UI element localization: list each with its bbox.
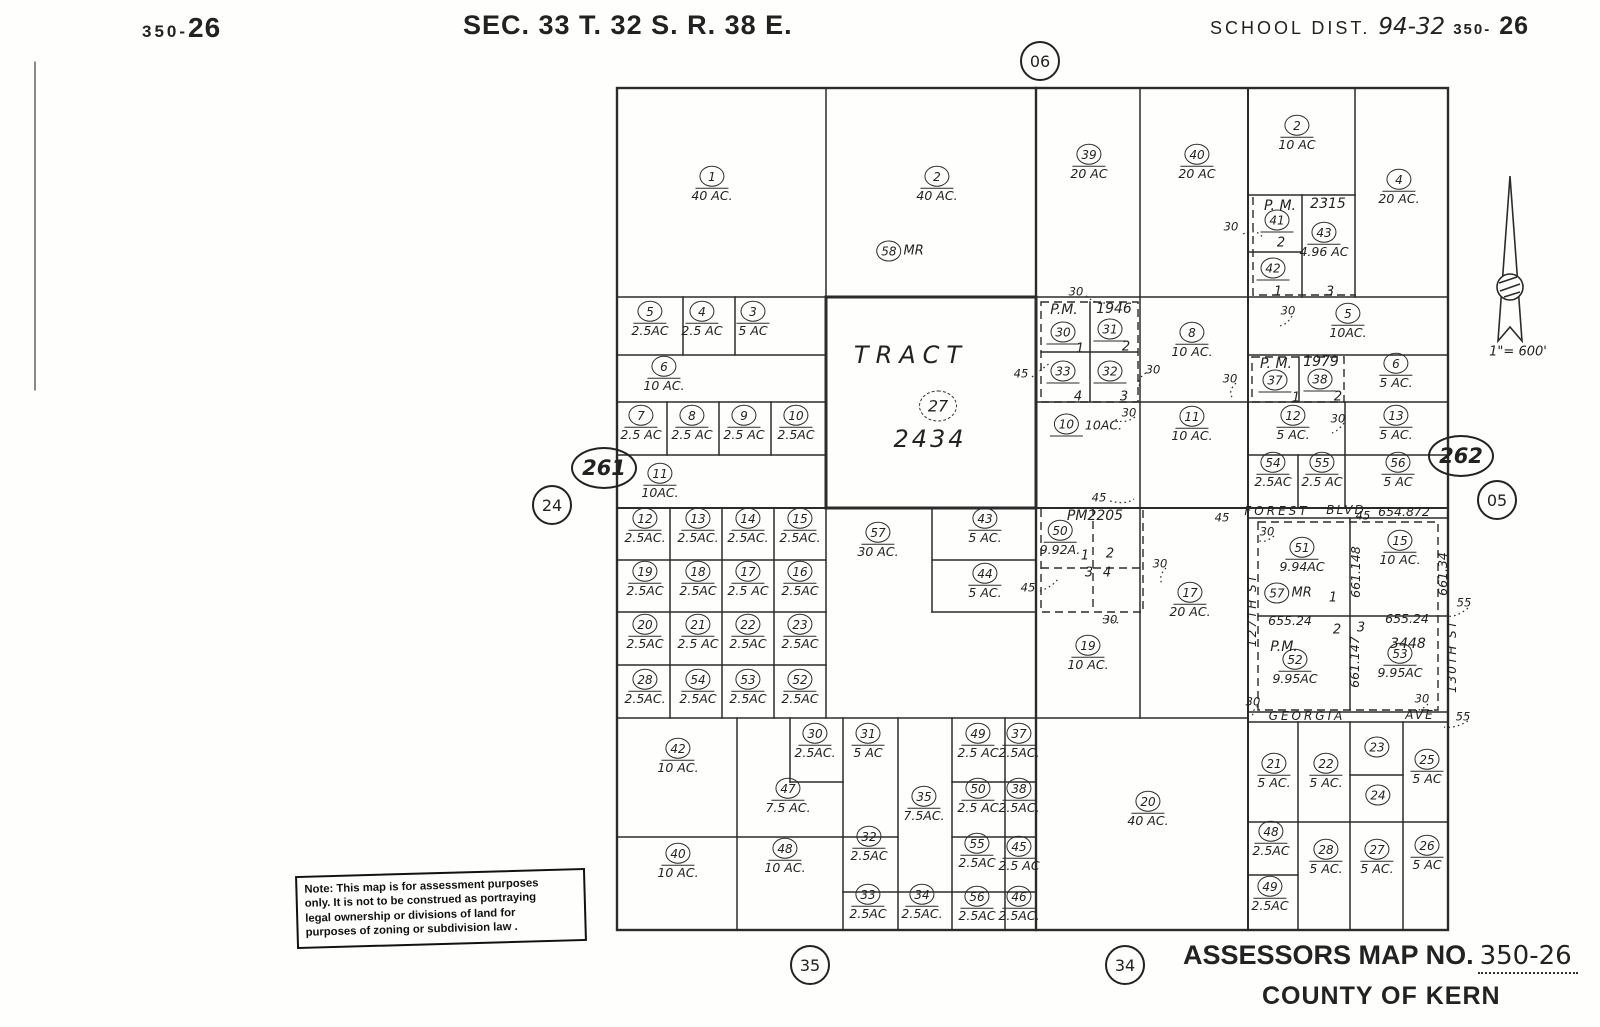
lot-label: 2: [1334, 391, 1342, 404]
parcel-55-label: 552.5AC: [958, 833, 995, 870]
parcel-acreage: 2.5AC.: [901, 908, 942, 921]
parcel-number: 58: [876, 241, 901, 262]
dim-label: 30: [1223, 373, 1238, 385]
dim-label: 30: [1331, 413, 1346, 425]
parcel-number: 52: [787, 669, 812, 690]
parcel-31-label: 31: [1094, 319, 1127, 342]
parcel-8-label: 82.5 AC: [671, 405, 712, 442]
parcel-42-label: 42: [1257, 258, 1290, 281]
parcel-11-label: 1110 AC.: [1171, 406, 1212, 443]
parcel-acreage: 5 AC: [1412, 773, 1441, 786]
parcel-56-label: 565 AC: [1382, 452, 1415, 489]
parcel-45-label: 452.5 AC: [998, 836, 1039, 873]
parcel-acreage: 5 AC.: [1379, 377, 1412, 390]
parcel-number: 39: [1076, 144, 1101, 165]
parcel-35-label: 357.5AC.: [903, 786, 944, 823]
parcel-43-label: 435 AC.: [968, 508, 1001, 545]
parcel-13-label: 135 AC.: [1379, 405, 1412, 442]
dim-label: 45: [1014, 368, 1029, 380]
pm-label: P. M.: [1260, 357, 1292, 371]
parcel-number: 25: [1414, 749, 1439, 770]
parcel-acreage: 20 AC.: [1378, 193, 1419, 206]
parcel-acreage: 5 AC.: [1276, 429, 1309, 442]
parcel-30-label: 30: [1047, 322, 1080, 345]
parcel-21-label: 215 AC.: [1257, 753, 1290, 790]
parcel-acreage: 5 AC: [853, 747, 882, 760]
parcel-acreage: 2.5AC.: [794, 747, 835, 760]
parcel-acreage: 2.5AC.: [998, 802, 1039, 815]
parcel-acreage: 10 AC: [1278, 139, 1315, 152]
lot-label: 3: [1357, 622, 1365, 635]
dim-label: 30: [1224, 221, 1239, 233]
parcel-number: 31: [855, 723, 880, 744]
parcel-acreage: 2.5AC: [781, 638, 818, 651]
parcel-number: 14: [735, 508, 760, 529]
parcel-57-label: 5730 AC.: [857, 522, 898, 559]
parcel-acreage: 2.5AC: [626, 638, 663, 651]
lot-label: 3: [1085, 567, 1093, 580]
parcel-number: 22: [1313, 753, 1338, 774]
adjacent-sheet-ref-34: 34: [1105, 945, 1145, 985]
parcel-acreage: 5 AC.: [968, 532, 1001, 545]
parcel-acreage: 2.5AC.: [998, 910, 1039, 923]
dim-label: 30: [1146, 364, 1161, 376]
parcel-acreage: 10 AC.: [1171, 346, 1212, 359]
parcel-2-label: 240 AC.: [916, 166, 957, 203]
parcel-number: 11: [647, 463, 672, 484]
parcel-acreage: 5 AC.: [1360, 863, 1393, 876]
parcel-number: 53: [735, 669, 760, 690]
parcel-acreage: 5 AC: [1412, 859, 1441, 872]
parcel-20-label: 2040 AC.: [1127, 791, 1168, 828]
parcel-number: 17: [1177, 582, 1202, 603]
parcel-number: 13: [1383, 405, 1408, 426]
parcel-number: 6: [651, 356, 676, 377]
parcel-acreage: 2.5 AC: [677, 638, 718, 651]
parcel-15-label: 1510 AC.: [1379, 530, 1420, 567]
assessors-map-number: 350-26: [1478, 941, 1578, 974]
parcel-number: 55: [964, 833, 989, 854]
parcel-acreage: 7.5AC.: [903, 810, 944, 823]
parcel-40-label: 4010 AC.: [657, 843, 698, 880]
parcel-number: 13: [685, 508, 710, 529]
parcel-acreage: 2.5 AC: [1301, 476, 1342, 489]
parcel-acreage: 10AC.: [1085, 419, 1122, 432]
parcel-44-label: 445 AC.: [968, 563, 1001, 600]
mineral-rights-suffix: MR: [904, 245, 924, 258]
parcel-number: 49: [1257, 876, 1282, 897]
parcel-17-label: 1720 AC.: [1169, 582, 1210, 619]
county-label: COUNTY OF KERN: [1262, 982, 1501, 1011]
parcel-6-label: 65 AC.: [1379, 353, 1412, 390]
parcel-number: 48: [772, 838, 797, 859]
pm-label: 1946: [1096, 302, 1132, 316]
parcel-acreage: 4.96 AC: [1299, 246, 1348, 259]
parcel-number: 32: [1097, 361, 1122, 382]
parcel-27-label: 275 AC.: [1360, 839, 1393, 876]
parcel-number: 15: [1387, 530, 1412, 551]
parcel-number: 35: [911, 786, 936, 807]
parcel-number: 55: [1309, 452, 1334, 473]
parcel-number: 7: [628, 405, 653, 426]
parcel-acreage: 20 AC: [1070, 168, 1107, 181]
dim-label: 30: [1246, 696, 1261, 708]
parcel-23-label: 23: [1364, 737, 1389, 758]
tract-label: 2434: [893, 427, 966, 451]
parcel-number: 20: [632, 614, 657, 635]
parcel-14-label: 142.5AC.: [727, 508, 768, 545]
adjacent-sheet-ref-35: 35: [790, 945, 830, 985]
adjacent-sheet-ref-24: 24: [532, 485, 572, 525]
len-label: 661.148: [1350, 546, 1363, 598]
map-annotations: 140 AC.240 AC.58MR3920 AC4020 AC210 AC41…: [0, 0, 1600, 1027]
parcel-acreage: 5 AC.: [1379, 429, 1412, 442]
parcel-56-label: 562.5AC: [958, 886, 995, 923]
pm-label: 3448: [1390, 637, 1426, 651]
parcel-number: 54: [1260, 452, 1285, 473]
parcel-acreage: 2.5 AC: [998, 860, 1039, 873]
parcel-number: 56: [1385, 452, 1410, 473]
dim-label: 30: [1153, 558, 1168, 570]
parcel-18-label: 182.5AC: [679, 561, 716, 598]
parcel-16-label: 162.5AC: [781, 561, 818, 598]
parcel-acreage: 5 AC: [738, 325, 767, 338]
parcel-54-label: 542.5AC: [1254, 452, 1291, 489]
parcel-19-label: 192.5AC: [626, 561, 663, 598]
parcel-acreage: 2.5AC: [729, 638, 766, 651]
parcel-50-label: 502.5 AC: [957, 778, 998, 815]
len-label: 655.24: [1385, 613, 1429, 626]
parcel-acreage: 5 AC.: [1309, 777, 1342, 790]
parcel-acreage: 2.5AC.: [624, 532, 665, 545]
parcel-5-label: 510AC.: [1329, 303, 1366, 340]
street-label: BLVD: [1326, 504, 1366, 516]
parcel-acreage: 10 AC.: [643, 380, 684, 393]
parcel-acreage: 2.5AC.: [779, 532, 820, 545]
parcel-10-label: 102.5AC: [777, 405, 814, 442]
parcel-number: 49: [965, 723, 990, 744]
parcel-acreage: 2.5AC: [626, 585, 663, 598]
parcel-number: 15: [787, 508, 812, 529]
scale-label: 1"= 600': [1489, 345, 1547, 360]
parcel-number: 8: [1179, 322, 1204, 343]
parcel-1-label: 140 AC.: [691, 166, 732, 203]
parcel-number: 21: [1261, 753, 1286, 774]
parcel-acreage: 10 AC.: [657, 867, 698, 880]
parcel-19-label: 1910 AC.: [1067, 635, 1108, 672]
pm-label: P. M.: [1264, 199, 1296, 213]
parcel-number: 19: [1075, 635, 1100, 656]
parcel-acreage: 10 AC.: [1171, 430, 1212, 443]
parcel-number: 37: [1262, 370, 1287, 391]
assessors-map-label: ASSESSORS MAP NO.: [1183, 940, 1474, 971]
lot-label: 3: [1326, 286, 1334, 299]
parcel-number: 31: [1097, 319, 1122, 340]
parcel-46-label: 462.5AC.: [998, 886, 1039, 923]
parcel-48-label: 482.5AC: [1252, 821, 1289, 858]
parcel-acreage: 9.94AC: [1279, 561, 1324, 574]
parcel-acreage: 9.92A.: [1040, 544, 1081, 557]
parcel-number: 37: [1006, 723, 1031, 744]
parcel-number: 18: [685, 561, 710, 582]
parcel-number: 45: [1006, 836, 1031, 857]
assessment-note: Note: This map is for assessment purpose…: [295, 868, 587, 949]
parcel-acreage: 40 AC.: [916, 190, 957, 203]
dim-label: 30: [1103, 614, 1118, 626]
parcel-acreage: 2.5AC: [850, 850, 887, 863]
parcel-number: 57: [865, 522, 890, 543]
parcel-number: 44: [972, 563, 997, 584]
parcel-acreage: 5 AC.: [968, 587, 1001, 600]
parcel-number: 16: [787, 561, 812, 582]
parcel-4-label: 420 AC.: [1378, 169, 1419, 206]
parcel-number: 6: [1384, 353, 1409, 374]
parcel-acreage: 40 AC.: [1127, 815, 1168, 828]
parcel-27-label: 27: [919, 391, 957, 422]
parcel-number: 27: [919, 391, 957, 422]
parcel-number: 5: [637, 301, 662, 322]
dim-label: 55: [1456, 711, 1471, 723]
lot-label: 1: [1274, 286, 1282, 299]
parcel-number: 38: [1006, 778, 1031, 799]
lot-label: 3: [1120, 391, 1128, 404]
parcel-acreage: 2.5 AC: [957, 747, 998, 760]
parcel-3-label: 35 AC: [737, 301, 770, 338]
parcel-number: 32: [856, 826, 881, 847]
parcel-acreage: 7.5 AC.: [765, 802, 810, 815]
parcel-acreage: 9.95AC: [1377, 667, 1422, 680]
parcel-8-label: 810 AC.: [1171, 322, 1212, 359]
parcel-acreage: 2.5AC: [781, 693, 818, 706]
parcel-17-label: 172.5 AC: [727, 561, 768, 598]
street-label: 127TH ST: [1246, 573, 1258, 647]
parcel-number: 30: [802, 723, 827, 744]
parcel-5-label: 52.5AC: [631, 301, 668, 338]
lot-label: 1: [1292, 392, 1300, 405]
len-label: 655.24: [1268, 615, 1312, 628]
parcel-12-label: 125 AC.: [1276, 405, 1309, 442]
dim-label: 30: [1281, 305, 1296, 317]
parcel-acreage: 30 AC.: [857, 546, 898, 559]
lot-label: 4: [1074, 391, 1082, 404]
parcel-33-label: 33: [1047, 361, 1080, 384]
parcel-acreage: 9.95AC: [1272, 673, 1317, 686]
parcel-acreage: 20 AC.: [1169, 606, 1210, 619]
parcel-38-label: 38: [1304, 369, 1337, 392]
parcel-number: 40: [1184, 144, 1209, 165]
lot-label: 2: [1106, 548, 1114, 561]
parcel-37-label: 372.5AC.: [998, 723, 1039, 760]
parcel-57-label: 57MR: [1264, 583, 1312, 604]
parcel-acreage: 10AC.: [1329, 327, 1366, 340]
parcel-acreage: 2.5 AC: [681, 325, 722, 338]
parcel-acreage: 2.5AC: [729, 693, 766, 706]
parcel-7-label: 72.5 AC: [620, 405, 661, 442]
parcel-38-label: 382.5AC.: [998, 778, 1039, 815]
parcel-54-label: 542.5AC: [679, 669, 716, 706]
adjacent-sheet-ref-262: 262: [1428, 435, 1494, 477]
lot-label: 2: [1277, 237, 1285, 250]
parcel-acreage: 2.5AC: [777, 429, 814, 442]
parcel-acreage: 2.5 AC: [727, 585, 768, 598]
parcel-26-label: 265 AC: [1411, 835, 1444, 872]
parcel-number: 24: [1365, 785, 1390, 806]
parcel-53-label: 532.5AC: [729, 669, 766, 706]
parcel-acreage: 10 AC.: [657, 762, 698, 775]
parcel-number: 28: [632, 669, 657, 690]
pm-label: 2315: [1310, 197, 1346, 211]
parcel-number: 47: [775, 778, 800, 799]
parcel-acreage: 2.5AC: [958, 857, 995, 870]
parcel-number: 5: [1335, 303, 1360, 324]
parcel-acreage: 2.5AC: [1254, 476, 1291, 489]
dim-label: 45: [1092, 492, 1107, 504]
parcel-10-label: 1010AC.: [1050, 414, 1122, 437]
parcel-acreage: 2.5AC: [631, 325, 668, 338]
parcel-number: 30: [1050, 322, 1075, 343]
len-label: 654.872: [1378, 506, 1430, 519]
lot-label: 1: [1076, 343, 1084, 356]
dim-label: 45: [1021, 582, 1036, 594]
parcel-12-label: 122.5AC.: [624, 508, 665, 545]
parcel-number: 48: [1258, 821, 1283, 842]
parcel-number: 1: [699, 166, 724, 187]
parcel-acreage: 5 AC.: [1309, 863, 1342, 876]
parcel-acreage: 2.5AC: [1252, 845, 1289, 858]
parcel-number: 11: [1179, 406, 1204, 427]
parcel-43-label: 434.96 AC: [1299, 222, 1348, 259]
parcel-number: 23: [1364, 737, 1389, 758]
parcel-4-label: 42.5 AC: [681, 301, 722, 338]
parcel-25-label: 255 AC: [1411, 749, 1444, 786]
street-label: FOREST: [1244, 505, 1309, 517]
parcel-acreage: 10AC.: [641, 487, 678, 500]
parcel-number: 2: [924, 166, 949, 187]
parcel-number: 8: [679, 405, 704, 426]
dim-label: 30: [1069, 286, 1084, 298]
parcel-acreage: 2.5 AC: [671, 429, 712, 442]
parcel-acreage: 5 AC.: [1257, 777, 1290, 790]
parcel-number: 43: [972, 508, 997, 529]
parcel-30-label: 302.5AC.: [794, 723, 835, 760]
parcel-number: 33: [855, 884, 880, 905]
adjacent-sheet-ref-261: 261: [571, 447, 637, 489]
parcel-acreage: 2.5AC: [679, 585, 716, 598]
parcel-number: 27: [1364, 839, 1389, 860]
parcel-number: 54: [685, 669, 710, 690]
parcel-number: 46: [1006, 886, 1031, 907]
street-label: GEORGIA: [1269, 710, 1346, 722]
parcel-22-label: 222.5AC: [729, 614, 766, 651]
parcel-number: 4: [689, 301, 714, 322]
parcel-number: 57: [1264, 583, 1289, 604]
parcel-22-label: 225 AC.: [1309, 753, 1342, 790]
parcel-31-label: 315 AC: [852, 723, 885, 760]
parcel-number: 51: [1289, 537, 1314, 558]
parcel-number: 40: [665, 843, 690, 864]
parcel-55-label: 552.5 AC: [1301, 452, 1342, 489]
parcel-acreage: 20 AC: [1178, 168, 1215, 181]
parcel-15-label: 152.5AC.: [779, 508, 820, 545]
adjacent-sheet-ref-06: 06: [1020, 41, 1060, 81]
parcel-number: 33: [1050, 361, 1075, 382]
parcel-52-label: 522.5AC: [781, 669, 818, 706]
parcel-number: 9: [731, 405, 756, 426]
parcel-number: 28: [1313, 839, 1338, 860]
street-label: AVE: [1405, 709, 1434, 721]
parcel-11-label: 1110AC.: [641, 463, 678, 500]
parcel-acreage: 40 AC.: [691, 190, 732, 203]
lot-label: 2: [1122, 341, 1130, 354]
parcel-number: 12: [632, 508, 657, 529]
parcel-number: 19: [632, 561, 657, 582]
dim-label: 30: [1260, 526, 1275, 538]
pm-label: P.M.: [1270, 640, 1298, 654]
dim-label: 30: [1122, 407, 1137, 419]
parcel-number: 50: [965, 778, 990, 799]
parcel-50-label: 509.92A.: [1040, 520, 1081, 557]
parcel-28-label: 282.5AC.: [624, 669, 665, 706]
len-label: 661.34: [1437, 552, 1450, 596]
parcel-48-label: 4810 AC.: [764, 838, 805, 875]
parcel-39-label: 3920 AC: [1070, 144, 1107, 181]
parcel-number: 38: [1307, 369, 1332, 390]
parcel-number: 56: [964, 886, 989, 907]
dim-label: 45: [1215, 512, 1230, 524]
dim-label: 30: [1415, 693, 1430, 705]
len-label: 661.147: [1349, 636, 1362, 688]
parcel-acreage: 2.5AC: [1251, 900, 1288, 913]
parcel-58-label: 58MR: [876, 241, 924, 262]
parcel-acreage: 2.5AC: [679, 693, 716, 706]
parcel-number: 17: [735, 561, 760, 582]
parcel-acreage: 2.5 AC: [957, 802, 998, 815]
parcel-2-label: 210 AC: [1278, 115, 1315, 152]
pm-label: PM2205: [1067, 509, 1123, 523]
tract-label: TRACT: [854, 343, 968, 367]
parcel-40-label: 4020 AC: [1178, 144, 1215, 181]
parcel-20-label: 202.5AC: [626, 614, 663, 651]
parcel-13-label: 132.5AC.: [677, 508, 718, 545]
lot-label: 2: [1333, 624, 1341, 637]
parcel-acreage: 2.5AC: [849, 908, 886, 921]
parcel-number: 21: [685, 614, 710, 635]
parcel-37-label: 37: [1259, 370, 1292, 393]
parcel-acreage: 10 AC.: [1067, 659, 1108, 672]
parcel-number: 4: [1386, 169, 1411, 190]
assessor-map-sheet: 350- 26 SEC. 33 T. 32 S. R. 38 E. SCHOOL…: [0, 0, 1600, 1027]
parcel-acreage: 2.5AC.: [624, 693, 665, 706]
parcel-32-label: 322.5AC: [850, 826, 887, 863]
footer-title: ASSESSORS MAP NO. 350-26: [1183, 940, 1578, 974]
parcel-number: 2: [1284, 115, 1309, 136]
parcel-number: 10: [783, 405, 808, 426]
pm-label: 1979: [1303, 355, 1339, 369]
mineral-rights-suffix: MR: [1292, 587, 1312, 600]
adjacent-sheet-ref-05: 05: [1477, 480, 1517, 520]
parcel-acreage: 10 AC.: [1379, 554, 1420, 567]
parcel-47-label: 477.5 AC.: [765, 778, 810, 815]
parcel-33-label: 332.5AC: [849, 884, 886, 921]
parcel-acreage: 2.5 AC: [620, 429, 661, 442]
dim-label: 55: [1457, 597, 1472, 609]
parcel-acreage: 2.5AC.: [677, 532, 718, 545]
parcel-number: 20: [1135, 791, 1160, 812]
parcel-acreage: 2.5AC.: [998, 747, 1039, 760]
parcel-number: 42: [665, 738, 690, 759]
parcel-number: 10: [1054, 414, 1079, 435]
parcel-6-label: 610 AC.: [643, 356, 684, 393]
